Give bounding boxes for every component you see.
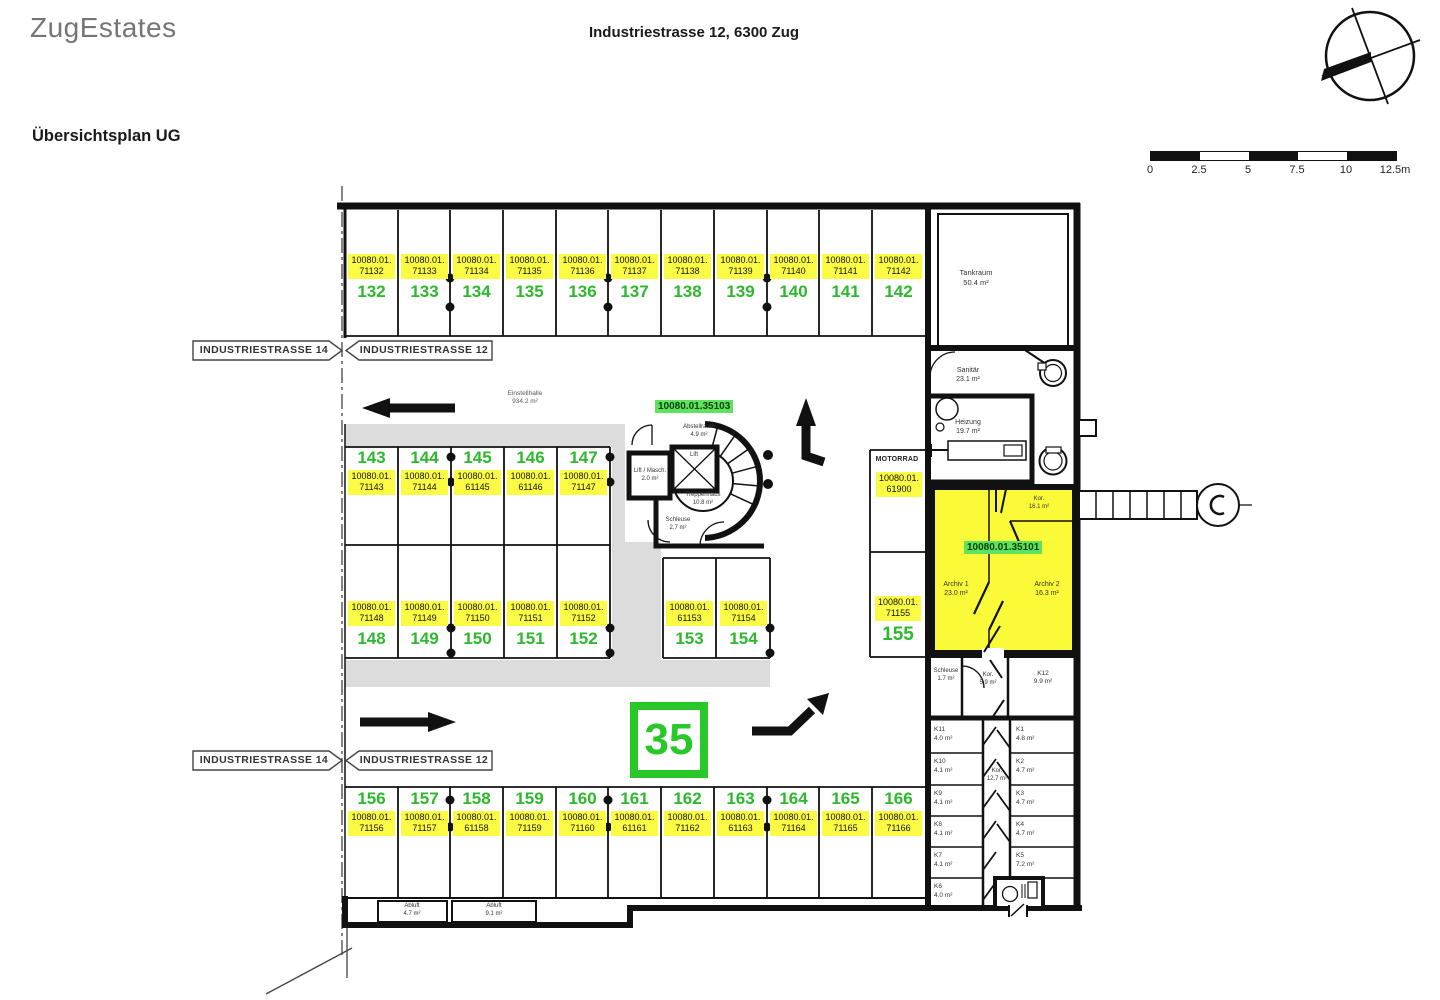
room-label-kor-mid: Kor. 12.7 m² bbox=[977, 768, 1017, 784]
parking-stall-146: 14610080.01. 61146 bbox=[504, 449, 557, 495]
stall-code: 10080.01. 71144 bbox=[401, 470, 447, 495]
stall-code: 10080.01. 71154 bbox=[720, 601, 766, 626]
scale-bar-segments bbox=[1150, 151, 1397, 161]
exit-ladder bbox=[1079, 484, 1252, 526]
stall-code: 10080.01. 71140 bbox=[770, 254, 816, 279]
unit-label-35103: 10080.01.35103 bbox=[655, 400, 733, 413]
stall-code: 10080.01. 71166 bbox=[875, 811, 921, 836]
stall-number: 146 bbox=[516, 449, 544, 466]
stall-code: 10080.01. 71151 bbox=[507, 601, 553, 626]
parking-stall-134: 10080.01. 71134134 bbox=[450, 254, 503, 300]
parking-stall-137: 10080.01. 71137137 bbox=[608, 254, 661, 300]
stall-number: 138 bbox=[673, 283, 701, 300]
stall-number: 145 bbox=[463, 449, 491, 466]
stall-code: 10080.01. 71141 bbox=[822, 254, 868, 279]
cellar-room-k8: K8 4.1 m² bbox=[934, 821, 952, 839]
stall-code: 10080.01. 71135 bbox=[506, 254, 552, 279]
stall-number: 141 bbox=[831, 283, 859, 300]
stall-number: 164 bbox=[779, 790, 807, 807]
room-label-schleuse2: Schleuse 1.7 m² bbox=[928, 668, 964, 684]
room-label-lift-masch: Lift / Masch. 2.0 m² bbox=[627, 468, 673, 484]
stall-number: 160 bbox=[568, 790, 596, 807]
stall-number: 165 bbox=[831, 790, 859, 807]
floorplan-page: ZugEstates Industriestrasse 12, 6300 Zug… bbox=[0, 0, 1440, 1000]
stall-number: 135 bbox=[515, 283, 543, 300]
parking-stall-154: 10080.01. 71154154 bbox=[717, 601, 770, 647]
parking-stall-150: 10080.01. 71150150 bbox=[451, 601, 504, 647]
stall-number: 139 bbox=[726, 283, 754, 300]
cellar-room-k9: K9 4.1 m² bbox=[934, 790, 952, 808]
parking-stall-151: 10080.01. 71151151 bbox=[504, 601, 557, 647]
stall-number: 136 bbox=[568, 283, 596, 300]
stall-number: 144 bbox=[410, 449, 438, 466]
parking-stall-164: 16410080.01. 71164 bbox=[767, 790, 820, 836]
building-number: 35 bbox=[645, 715, 694, 765]
stall-number: 140 bbox=[779, 283, 807, 300]
stall-number: 157 bbox=[410, 790, 438, 807]
stall-code: 10080.01. 71134 bbox=[453, 254, 499, 279]
stall-number: 155 bbox=[882, 625, 914, 644]
stall-number: 133 bbox=[410, 283, 438, 300]
parking-stall-162: 16210080.01. 71162 bbox=[661, 790, 714, 836]
room-label-kor-small: Kor. 5.9 m² bbox=[968, 672, 1008, 688]
cellar-room-k10: K10 4.1 m² bbox=[934, 758, 952, 776]
room-label-tankraum: Tankraum 50.4 m² bbox=[938, 268, 1014, 288]
stall-code: 10080.01. 61163 bbox=[717, 811, 763, 836]
room-label-einstellhalle: Einstellhalle 934.2 m² bbox=[485, 390, 565, 407]
parking-stall-149: 10080.01. 71149149 bbox=[398, 601, 451, 647]
stall-code: 10080.01. 71133 bbox=[401, 254, 447, 279]
scale-bar: 0 2.5 5 7.5 10 12.5m bbox=[1150, 151, 1396, 185]
parking-stall-159: 15910080.01. 71159 bbox=[503, 790, 556, 836]
parking-stall-135: 10080.01. 71135135 bbox=[503, 254, 556, 300]
cellar-rooms bbox=[928, 658, 1077, 917]
stall-code: 10080.01. 71132 bbox=[348, 254, 394, 279]
scale-tick: 7.5 bbox=[1289, 164, 1304, 176]
room-label-archiv2: Archiv 2 16.3 m² bbox=[1016, 580, 1078, 598]
stall-code: 10080.01. 71150 bbox=[454, 601, 500, 626]
parking-stall-163: 16310080.01. 61163 bbox=[714, 790, 767, 836]
parking-stall-143: 14310080.01. 71143 bbox=[345, 449, 398, 495]
street-label-14: INDUSTRIESTRASSE 14 bbox=[196, 751, 332, 770]
parking-stall-158: 15810080.01. 61158 bbox=[450, 790, 503, 836]
parking-stall-147: 14710080.01. 71147 bbox=[557, 449, 610, 495]
parking-stall-133: 10080.01. 71133133 bbox=[398, 254, 451, 300]
archive-unit-highlight bbox=[932, 487, 1075, 653]
room-label-archiv1: Archiv 1 23.0 m² bbox=[925, 580, 987, 598]
page-title: Übersichtsplan UG bbox=[32, 127, 181, 146]
cellar-room-k1: K1 4.8 m² bbox=[1016, 726, 1034, 744]
cellar-room-k4: K4 4.7 m² bbox=[1016, 821, 1034, 839]
stall-number: 150 bbox=[463, 630, 491, 647]
cellar-room-k11: K11 4.0 m² bbox=[934, 726, 952, 744]
stall-code: 10080.01. 71149 bbox=[401, 601, 447, 626]
parking-stall-155: 10080.01. 71155155 bbox=[870, 596, 926, 644]
parking-stall-140: 10080.01. 71140140 bbox=[767, 254, 820, 300]
room-label-abluft2: Abluft 9.1 m² bbox=[458, 903, 530, 919]
parking-stall-142: 10080.01. 71142142 bbox=[872, 254, 925, 300]
stall-number: 161 bbox=[620, 790, 648, 807]
north-compass-icon bbox=[1316, 4, 1424, 108]
parking-stall-165: 16510080.01. 71165 bbox=[819, 790, 872, 836]
street-label-12: INDUSTRIESTRASSE 12 bbox=[356, 341, 492, 360]
stall-number: 154 bbox=[729, 630, 757, 647]
stall-code: 10080.01. 71157 bbox=[401, 811, 447, 836]
stall-code: 10080.01. 71164 bbox=[770, 811, 816, 836]
cellar-room-k6: K6 4.0 m² bbox=[934, 883, 952, 901]
room-label-lift: Lift bbox=[679, 452, 709, 460]
stall-code: 10080.01. 71165 bbox=[822, 811, 868, 836]
scale-tick: 5 bbox=[1245, 164, 1251, 176]
stall-number: 166 bbox=[884, 790, 912, 807]
property-line bbox=[266, 186, 352, 994]
parking-stall-153: 10080.01. 61153153 bbox=[663, 601, 716, 647]
stall-number: 156 bbox=[357, 790, 385, 807]
parking-stall-152: 10080.01. 71152152 bbox=[557, 601, 610, 647]
stall-number: 159 bbox=[515, 790, 543, 807]
stall-number: 132 bbox=[357, 283, 385, 300]
parking-stall-132: 10080.01. 71132132 bbox=[345, 254, 398, 300]
stall-code: 10080.01. 71147 bbox=[560, 470, 606, 495]
cellar-room-k2: K2 4.7 m² bbox=[1016, 758, 1034, 776]
parking-stall-145: 14510080.01. 61145 bbox=[451, 449, 504, 495]
parking-stall-160: 16010080.01. 71160 bbox=[556, 790, 609, 836]
parking-stall-138: 10080.01. 71138138 bbox=[661, 254, 714, 300]
stall-code: 10080.01. 71143 bbox=[348, 470, 394, 495]
cellar-room-k7: K7 4.1 m² bbox=[934, 852, 952, 870]
stall-code: 10080.01. 71137 bbox=[611, 254, 657, 279]
stall-number: 143 bbox=[357, 449, 385, 466]
stall-code: 10080.01. 61146 bbox=[507, 470, 553, 495]
room-label-sanitaer: Sanitär 23.1 m² bbox=[932, 366, 1004, 384]
stall-code: 10080.01. 71138 bbox=[664, 254, 710, 279]
parking-stall-157: 15710080.01. 71157 bbox=[398, 790, 451, 836]
stall-code: 10080.01. 71156 bbox=[348, 811, 394, 836]
stall-code: 10080.01. 61153 bbox=[666, 601, 712, 626]
room-label-k12: K12 9.9 m² bbox=[1020, 670, 1066, 687]
parking-stall-166: 16610080.01. 71166 bbox=[872, 790, 925, 836]
stall-code: 10080.01. 71155 bbox=[875, 596, 921, 621]
parking-stall-motorrad: 10080.01. 61900 bbox=[872, 472, 926, 497]
parking-stall-141: 10080.01. 71141141 bbox=[819, 254, 872, 300]
street-label-14: INDUSTRIESTRASSE 14 bbox=[196, 341, 332, 360]
cellar-room-k3: K3 4.7 m² bbox=[1016, 790, 1034, 808]
plan-address: Industriestrasse 12, 6300 Zug bbox=[589, 24, 799, 41]
parking-stall-148: 10080.01. 71148148 bbox=[345, 601, 398, 647]
motorrad-label: MOTORRAD bbox=[866, 456, 928, 463]
stall-number: 158 bbox=[462, 790, 490, 807]
stall-number: 142 bbox=[884, 283, 912, 300]
stall-number: 148 bbox=[357, 630, 385, 647]
stall-code: 10080.01. 71160 bbox=[559, 811, 605, 836]
stall-code: 10080.01. 71152 bbox=[560, 601, 606, 626]
stall-code: 10080.01. 71142 bbox=[875, 254, 921, 279]
stall-number: 152 bbox=[569, 630, 597, 647]
cellar-room-k5: K5 7.2 m² bbox=[1016, 852, 1034, 870]
stall-number: 162 bbox=[673, 790, 701, 807]
room-label-kor-archiv: Kor. 16.1 m² bbox=[1014, 496, 1064, 512]
room-label-abstellraum: Abstellraum 4.9 m² bbox=[668, 424, 730, 440]
parking-stall-139: 10080.01. 71139139 bbox=[714, 254, 767, 300]
scale-tick: 2.5 bbox=[1191, 164, 1206, 176]
stall-code: 10080.01. 61145 bbox=[454, 470, 500, 495]
room-label-schleuse: Schleuse 2.7 m² bbox=[650, 517, 706, 533]
stall-code: 10080.01. 61158 bbox=[453, 811, 499, 836]
stall-code: 10080.01. 71148 bbox=[348, 601, 394, 626]
parking-stall-161: 16110080.01. 61161 bbox=[608, 790, 661, 836]
stall-number: 137 bbox=[620, 283, 648, 300]
stall-code: 10080.01. 71136 bbox=[559, 254, 605, 279]
stall-number: 151 bbox=[516, 630, 544, 647]
scale-tick: 10 bbox=[1340, 164, 1352, 176]
stall-code: 10080.01. 71139 bbox=[717, 254, 763, 279]
room-label-heizung: Heizung 19.7 m² bbox=[932, 418, 1004, 436]
company-logo: ZugEstates bbox=[30, 12, 177, 44]
parking-stall-136: 10080.01. 71136136 bbox=[556, 254, 609, 300]
room-label-treppenhaus: Treppenhaus 10.8 m² bbox=[672, 492, 734, 508]
scale-tick: 12.5m bbox=[1380, 164, 1411, 176]
room-label-abluft1: Abluft 4.7 m² bbox=[382, 903, 442, 919]
stall-code: 10080.01. 71159 bbox=[506, 811, 552, 836]
stall-code: 10080.01. 71162 bbox=[664, 811, 710, 836]
parking-stall-144: 14410080.01. 71144 bbox=[398, 449, 451, 495]
stall-number: 147 bbox=[569, 449, 597, 466]
street-label-12: INDUSTRIESTRASSE 12 bbox=[356, 751, 492, 770]
unit-label-35101: 10080.01.35101 bbox=[964, 541, 1042, 554]
building-number-badge: 35 bbox=[630, 702, 708, 778]
parking-stall-156: 15610080.01. 71156 bbox=[345, 790, 398, 836]
stall-code: 10080.01. 61161 bbox=[611, 811, 657, 836]
scale-tick: 0 bbox=[1147, 164, 1153, 176]
stall-number: 153 bbox=[675, 630, 703, 647]
stall-number: 163 bbox=[726, 790, 754, 807]
stall-number: 134 bbox=[462, 283, 490, 300]
stall-code: 10080.01. 61900 bbox=[876, 472, 922, 497]
stall-number: 149 bbox=[410, 630, 438, 647]
